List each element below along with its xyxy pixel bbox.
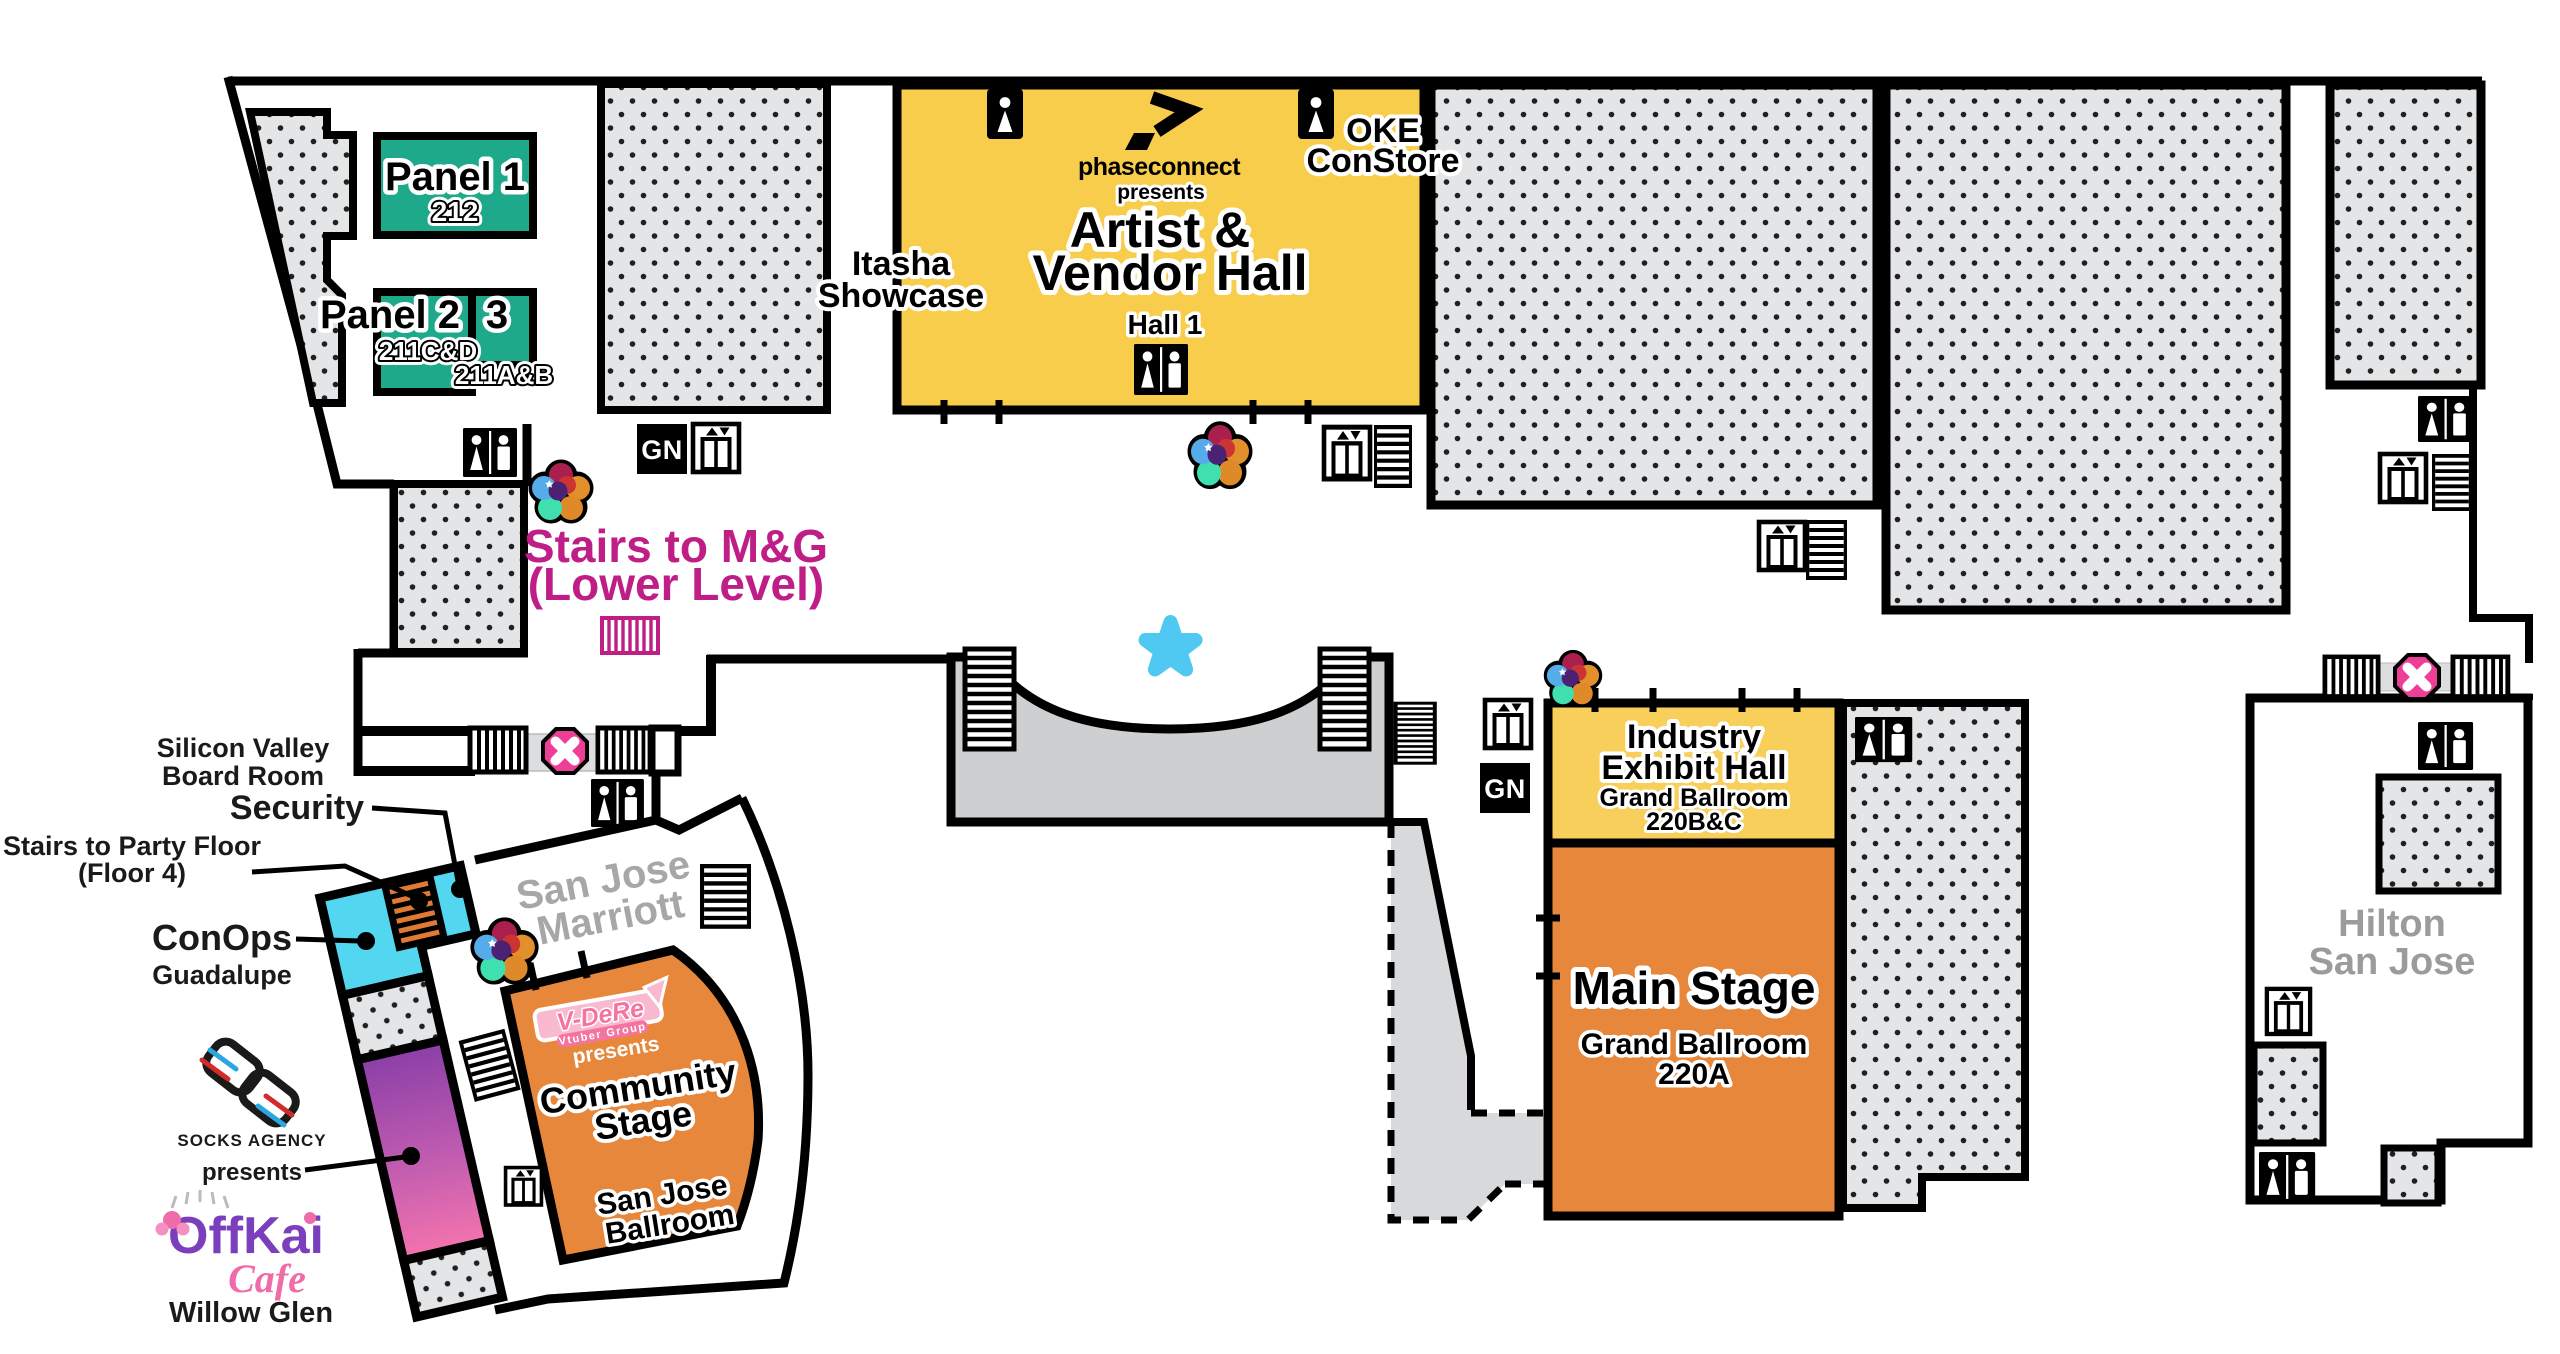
svg-text:Exhibit Hall: Exhibit Hall <box>1601 749 1786 787</box>
svg-text:Cafe: Cafe <box>228 1256 306 1301</box>
svg-text:220B&C: 220B&C <box>1646 808 1742 836</box>
svg-text:Panel 1: Panel 1 <box>385 155 525 199</box>
svg-text:Main Stage: Main Stage <box>1573 962 1816 1014</box>
svg-text:presents: presents <box>1117 181 1205 204</box>
svg-text:(Lower Level): (Lower Level) <box>528 558 825 610</box>
svg-text:ConStore: ConStore <box>1307 142 1460 180</box>
svg-text:Stairs to Party Floor: Stairs to Party Floor <box>3 831 262 861</box>
svg-text:Showcase: Showcase <box>818 277 984 315</box>
svg-text:Security: Security <box>230 789 364 827</box>
svg-text:Willow Glen: Willow Glen <box>169 1297 333 1329</box>
svg-text:ConOps: ConOps <box>152 917 292 958</box>
svg-text:Grand Ballroom: Grand Ballroom <box>1581 1028 1808 1061</box>
svg-text:presents: presents <box>202 1159 302 1186</box>
svg-text:212: 212 <box>432 196 479 227</box>
svg-text:Hilton: Hilton <box>2338 903 2446 945</box>
svg-text:Guadalupe: Guadalupe <box>152 960 292 990</box>
svg-text:phaseconnect: phaseconnect <box>1078 153 1241 181</box>
svg-text:Hall 1: Hall 1 <box>1128 309 1203 340</box>
svg-text:220A: 220A <box>1658 1058 1730 1091</box>
svg-text:Board Room: Board Room <box>162 761 324 791</box>
svg-text:Silicon Valley: Silicon Valley <box>157 733 330 763</box>
svg-text:San Jose: San Jose <box>2309 941 2476 983</box>
svg-text:Vendor Hall: Vendor Hall <box>1032 245 1307 301</box>
svg-text:Panel 2: Panel 2 <box>320 293 460 337</box>
svg-text:211A&B: 211A&B <box>455 360 553 390</box>
svg-text:(Floor 4): (Floor 4) <box>78 858 186 888</box>
svg-text:3: 3 <box>486 293 508 337</box>
svg-text:SOCKS AGENCY: SOCKS AGENCY <box>177 1131 326 1150</box>
